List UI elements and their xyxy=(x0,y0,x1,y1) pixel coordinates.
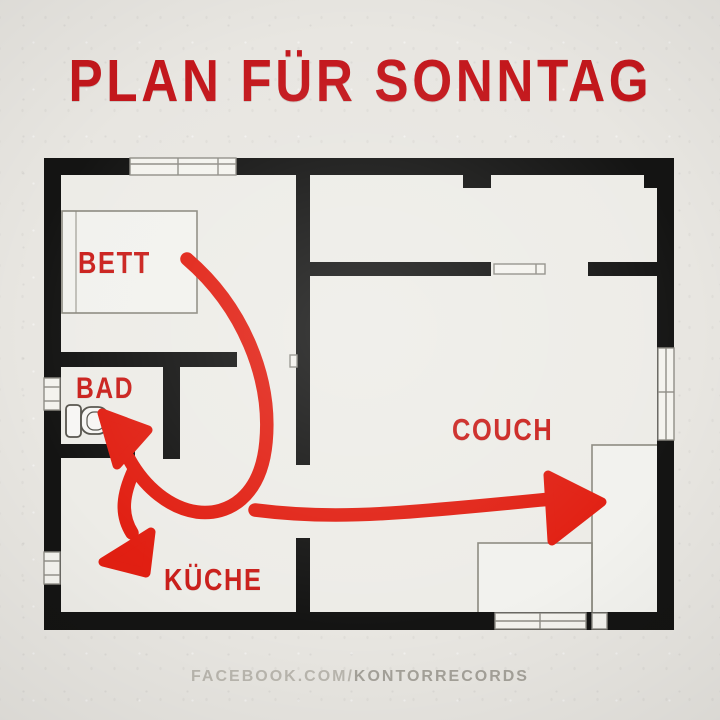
wall-bad-right xyxy=(163,367,180,459)
window-top-wall xyxy=(130,158,236,175)
window-left-kitchen xyxy=(44,552,60,584)
floor-plan xyxy=(0,0,720,720)
door-leaf-living-room xyxy=(494,264,545,274)
room-label-couch: COUCH xyxy=(452,414,553,445)
wall-divider-right-a xyxy=(310,262,491,276)
meme-poster: PLAN FÜR SONNTAG xyxy=(0,0,720,720)
couch-seat-bottom-outline xyxy=(478,543,592,614)
wall-central-upper xyxy=(296,175,310,465)
watermark-prefix: FACEBOOK.COM/ xyxy=(191,668,354,685)
door-tick-bett xyxy=(290,355,297,367)
wall-divider-right-b xyxy=(588,262,658,276)
window-bottom-small xyxy=(592,613,607,629)
couch-seat-right-outline xyxy=(592,445,658,614)
room-label-bett: BETT xyxy=(78,247,151,278)
window-left-bad xyxy=(44,378,60,410)
wall-bett-bad-divider xyxy=(44,352,237,367)
wall-stub-top-middle xyxy=(463,175,491,188)
room-label-kueche: KÜCHE xyxy=(164,564,263,595)
watermark-brand: KONTORRECORDS xyxy=(354,668,529,685)
room-label-bad: BAD xyxy=(76,374,134,404)
wall-stub-top-right xyxy=(644,175,658,188)
wall-central-lower xyxy=(296,538,310,612)
watermark: FACEBOOK.COM/KONTORRECORDS xyxy=(0,669,720,685)
toilet-tank xyxy=(66,405,81,437)
